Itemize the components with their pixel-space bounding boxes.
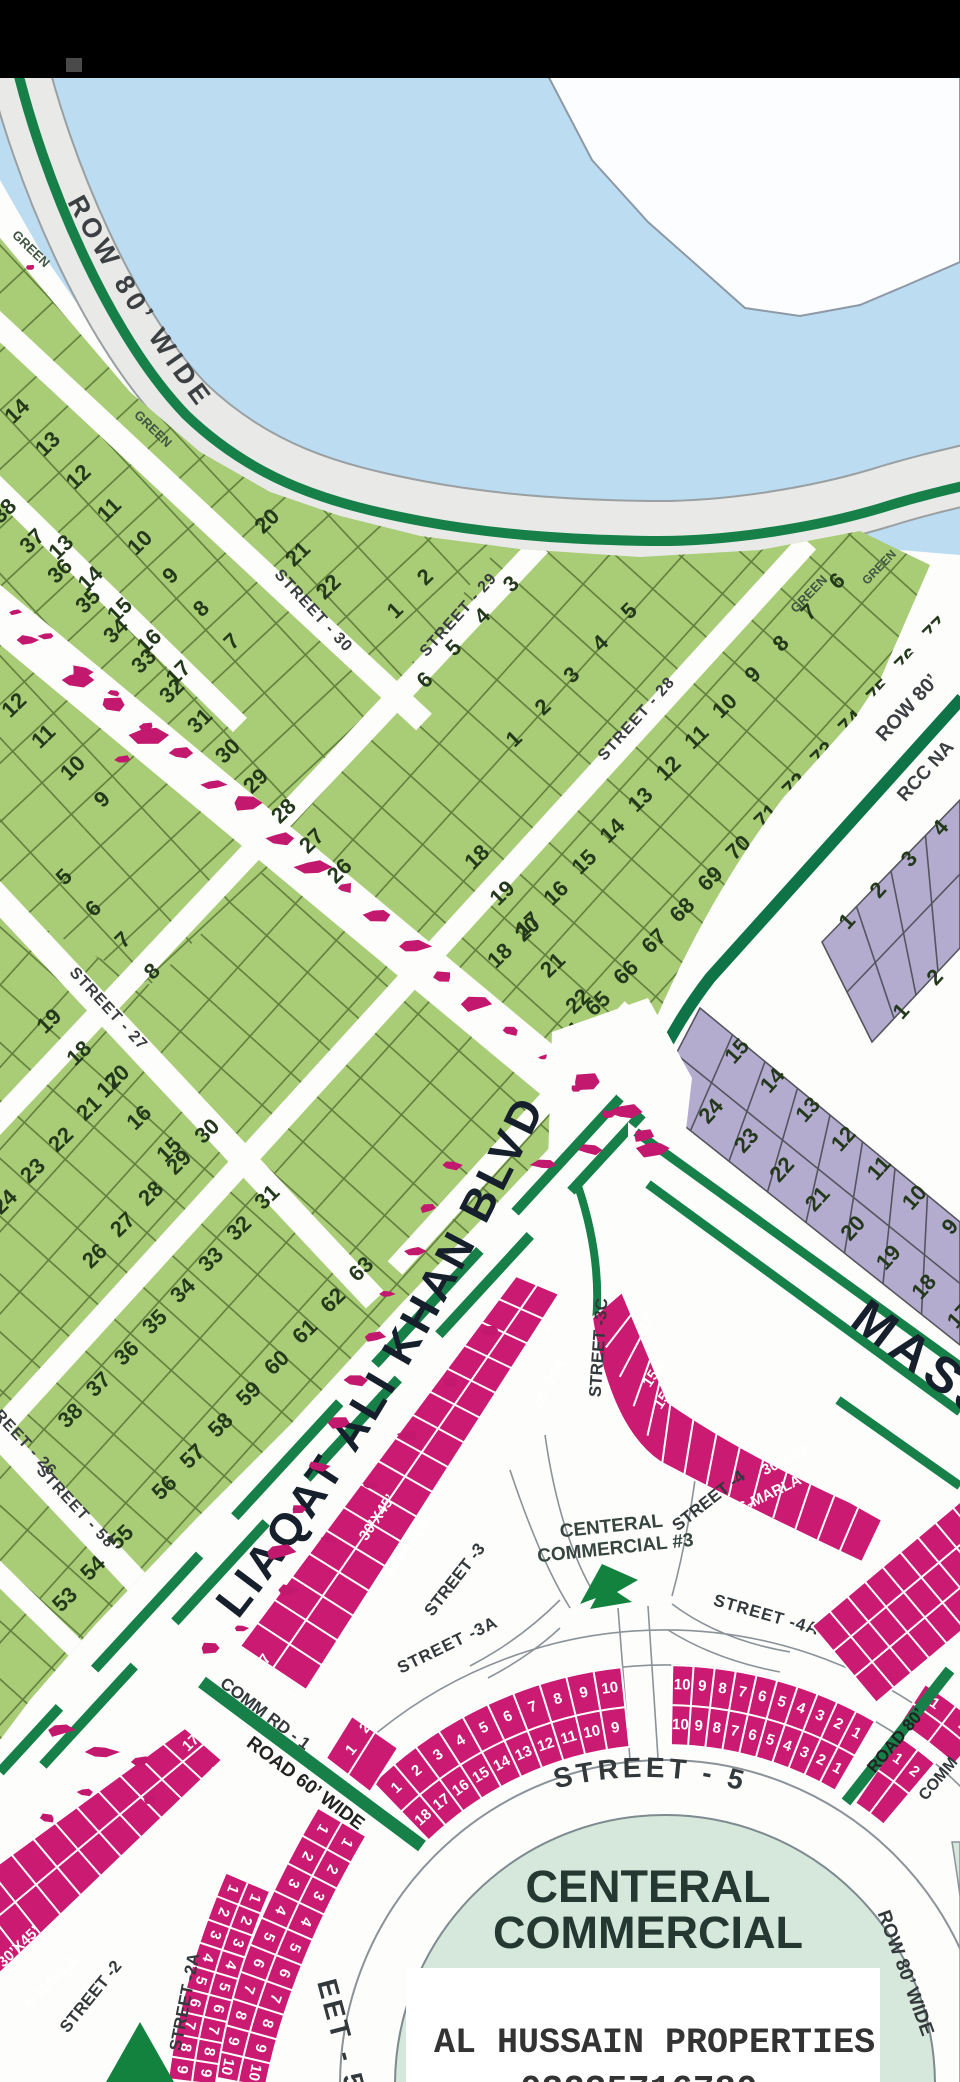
svg-text:COMMERCIAL: COMMERCIAL: [493, 1907, 803, 1958]
svg-text:10: 10: [672, 1716, 689, 1734]
svg-text:CENTERAL: CENTERAL: [526, 1861, 771, 1912]
svg-text:AL HUSSAIN PROPERTIES: AL HUSSAIN PROPERTIES: [434, 2023, 875, 2063]
svg-text:10: 10: [600, 1679, 619, 1698]
svg-text:10: 10: [582, 1722, 602, 1742]
svg-text:03235716780: 03235716780: [520, 2070, 758, 2082]
svg-text:10: 10: [245, 2063, 265, 2082]
svg-text:10: 10: [673, 1676, 690, 1694]
svg-text:9: 9: [694, 1717, 704, 1735]
svg-text:9: 9: [697, 1677, 707, 1695]
